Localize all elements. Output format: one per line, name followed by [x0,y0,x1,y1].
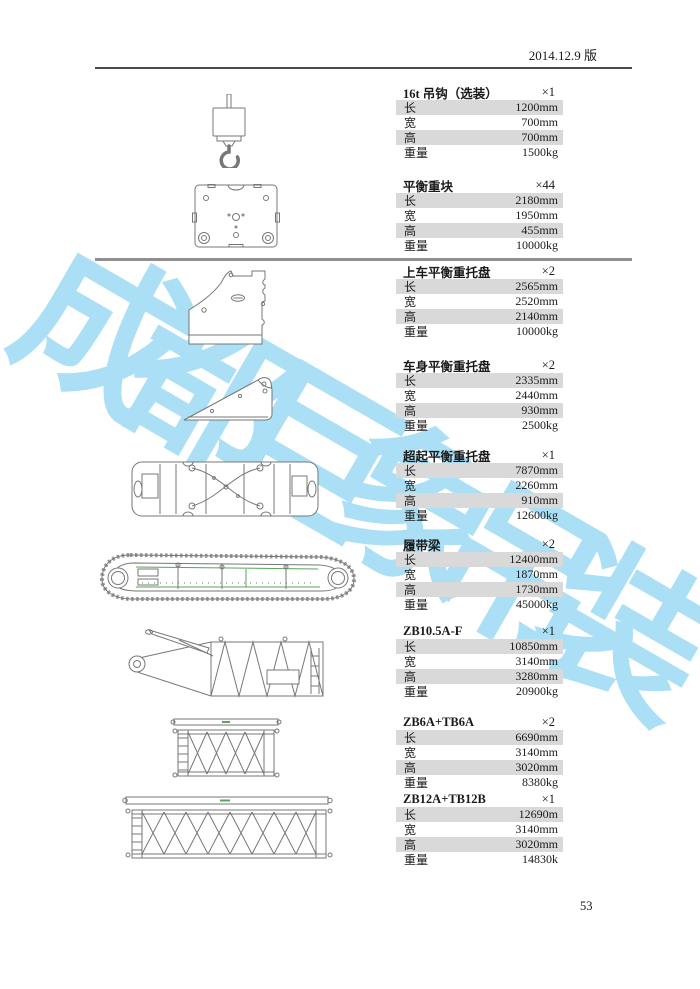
spec-row-width: 宽3140mm [396,745,563,760]
spec-table-hook: 16t 吊钩（选装）×1 长1200mm 宽700mm 高700mm 重量150… [396,84,563,160]
spec-row-width: 宽2440mm [396,388,563,403]
row-value: 45000kg [516,597,558,612]
row-value: 910mm [521,493,558,508]
header-rule [95,67,632,69]
spec-row-height: 高3280mm [396,669,563,684]
spec-row-length: 长12400mm [396,552,563,567]
section-title: 车身平衡重托盘 [403,356,491,375]
spec-row-height: 高2140mm [396,309,563,324]
spec-row-weight: 重量14830k [396,852,563,867]
counterweight-block-drawing [192,183,280,250]
spec-row-length: 长10850mm [396,639,563,654]
spec-row-weight: 重量12600kg [396,508,563,523]
spec-table-upper-tray: 上车平衡重托盘×2 长2565mm 宽2520mm 高2140mm 重量1000… [396,263,563,339]
section-divider-line [95,258,632,261]
upper-counterweight-tray-drawing [186,268,268,346]
row-label: 重量 [404,237,428,254]
row-value: 2335mm [515,373,558,388]
crawler-beam-drawing [96,549,360,607]
row-label: 重量 [404,507,428,524]
row-value: 1730mm [515,582,558,597]
row-label: 重量 [404,144,428,161]
spec-row-height: 高910mm [396,493,563,508]
row-label: 重量 [404,851,428,868]
row-value: 3280mm [515,669,558,684]
spec-row-length: 长7870mm [396,463,563,478]
spec-table-zb6a-tb6a: ZB6A+TB6A×2 长6690mm 宽3140mm 高3020mm 重量83… [396,714,563,790]
carbody-counterweight-tray-drawing [180,370,282,424]
row-value: 3020mm [515,837,558,852]
row-value: 1950mm [515,208,558,223]
hook-drawing [205,94,253,168]
row-value: 12690m [519,807,558,822]
row-value: 20900kg [516,684,558,699]
section-title: ZB10.5A-F [403,624,462,639]
row-value: 3140mm [515,822,558,837]
row-value: 2500kg [522,418,558,433]
section-title: 上车平衡重托盘 [403,262,491,281]
spec-table-carbody-tray: 车身平衡重托盘×2 长2335mm 宽2440mm 高930mm 重量2500k… [396,357,563,433]
row-value: 10000kg [516,324,558,339]
row-value: 930mm [521,403,558,418]
row-value: 1870mm [515,567,558,582]
section-count: ×2 [542,537,563,552]
section-title: ZB6A+TB6A [403,715,474,730]
page-number: 53 [580,899,593,914]
row-value: 2520mm [515,294,558,309]
spec-row-weight: 重量10000kg [396,238,563,253]
spec-row-length: 长2565mm [396,279,563,294]
row-value: 2140mm [515,309,558,324]
spec-table-crawler-beam: 履带梁×2 长12400mm 宽1870mm 高1730mm 重量45000kg [396,536,563,612]
row-value: 8380kg [522,775,558,790]
row-value: 1200mm [515,100,558,115]
watermark-text: 成都巨象吊装 [0,220,699,723]
row-value: 2565mm [515,279,558,294]
section-title: 16t 吊钩（选装） [403,83,498,102]
spec-row-length: 长2335mm [396,373,563,388]
spec-row-width: 宽700mm [396,115,563,130]
section-count: ×1 [542,85,563,100]
row-value: 10000kg [516,238,558,253]
section-title: ZB12A+TB12B [403,792,486,807]
spec-row-length: 长1200mm [396,100,563,115]
section-count: ×44 [535,178,563,193]
row-value: 700mm [521,115,558,130]
row-label: 重量 [404,417,428,434]
spec-row-width: 宽3140mm [396,654,563,669]
lattice-section-long-drawing [122,794,338,864]
section-count: ×1 [542,624,563,639]
section-count: ×2 [542,715,563,730]
spec-row-weight: 重量1500kg [396,145,563,160]
row-value: 6690mm [515,730,558,745]
boom-butt-section-drawing [125,622,329,704]
row-value: 12600kg [516,508,558,523]
row-value: 3020mm [515,760,558,775]
spec-row-width: 宽2520mm [396,294,563,309]
spec-table-zb12a-tb12b: ZB12A+TB12B×1 长12690m 宽3140mm 高3020mm 重量… [396,791,563,867]
row-value: 10850mm [509,639,558,654]
spec-row-height: 高3020mm [396,837,563,852]
row-value: 12400mm [509,552,558,567]
row-label: 重量 [404,323,428,340]
row-value: 3140mm [515,654,558,669]
spec-row-height: 高455mm [396,223,563,238]
spec-row-weight: 重量45000kg [396,597,563,612]
spec-row-length: 长6690mm [396,730,563,745]
spec-row-width: 宽2260mm [396,478,563,493]
row-value: 14830k [522,852,558,867]
spec-row-weight: 重量8380kg [396,775,563,790]
row-value: 700mm [521,130,558,145]
section-title: 超起平衡重托盘 [403,446,491,465]
spec-row-weight: 重量20900kg [396,684,563,699]
spec-row-height: 高700mm [396,130,563,145]
spec-row-weight: 重量2500kg [396,418,563,433]
document-page: 成都巨象吊装 2014.12.9 版 53 [0,0,700,989]
spec-row-weight: 重量10000kg [396,324,563,339]
superlift-tray-drawing [130,458,320,520]
spec-row-height: 高1730mm [396,582,563,597]
header-version: 2014.12.9 版 [529,45,597,64]
spec-table-zb105af: ZB10.5A-F×1 长10850mm 宽3140mm 高3280mm 重量2… [396,623,563,699]
spec-row-length: 长12690m [396,807,563,822]
row-value: 1500kg [522,145,558,160]
spec-row-width: 宽1870mm [396,567,563,582]
row-value: 2180mm [515,193,558,208]
row-value: 2260mm [515,478,558,493]
row-label: 重量 [404,774,428,791]
row-value: 3140mm [515,745,558,760]
spec-row-length: 长2180mm [396,193,563,208]
row-value: 2440mm [515,388,558,403]
section-count: ×2 [542,264,563,279]
section-count: ×2 [542,358,563,373]
row-label: 重量 [404,683,428,700]
spec-row-height: 高3020mm [396,760,563,775]
row-value: 455mm [521,223,558,238]
spec-table-superlift-tray: 超起平衡重托盘×1 长7870mm 宽2260mm 高910mm 重量12600… [396,447,563,523]
spec-row-height: 高930mm [396,403,563,418]
section-count: ×1 [542,448,563,463]
lattice-section-short-drawing [170,716,288,780]
spec-row-width: 宽3140mm [396,822,563,837]
spec-row-width: 宽1950mm [396,208,563,223]
row-label: 重量 [404,596,428,613]
spec-table-counterweight-block: 平衡重块×44 长2180mm 宽1950mm 高455mm 重量10000kg [396,177,563,253]
row-value: 7870mm [515,463,558,478]
section-count: ×1 [542,792,563,807]
